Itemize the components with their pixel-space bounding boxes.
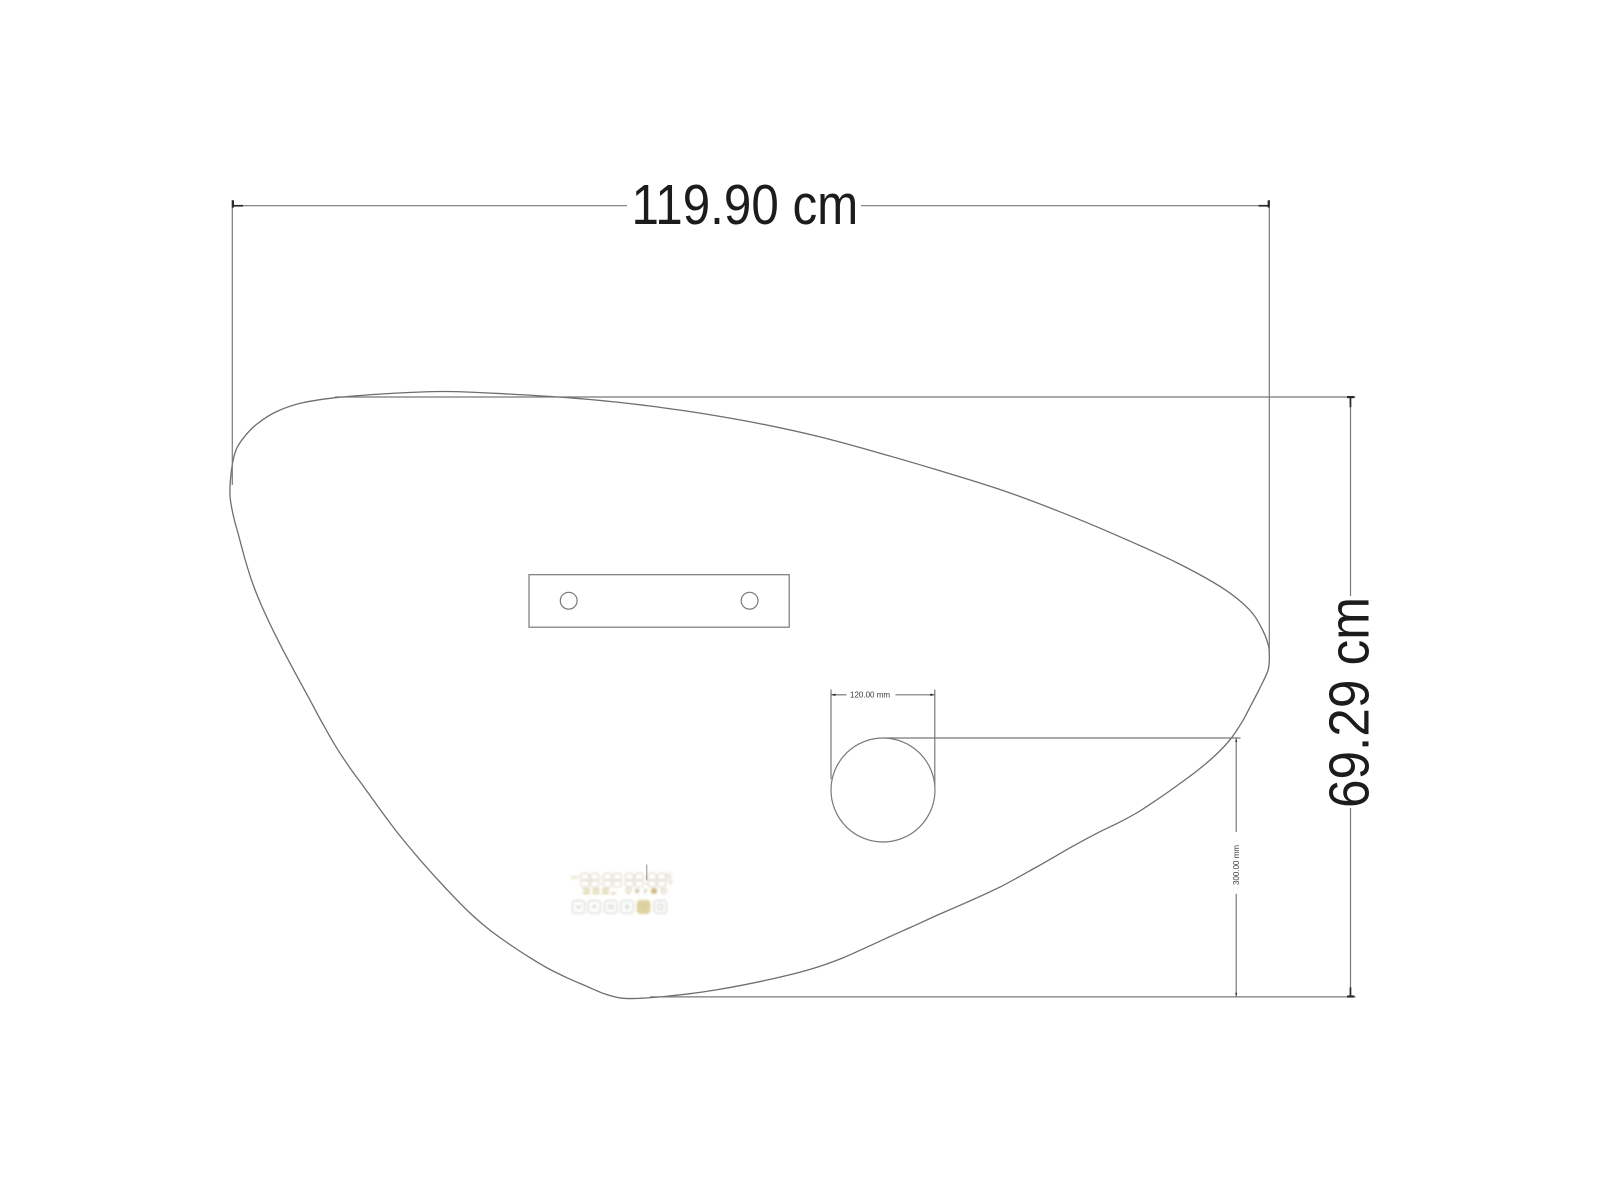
svg-text:SET: SET xyxy=(571,875,580,880)
svg-text:300.00 mm: 300.00 mm xyxy=(1232,845,1241,885)
svg-text:119.90 cm: 119.90 cm xyxy=(632,174,859,237)
svg-text:69.29 cm: 69.29 cm xyxy=(1318,597,1381,808)
svg-text:120.00 mm: 120.00 mm xyxy=(850,690,890,699)
